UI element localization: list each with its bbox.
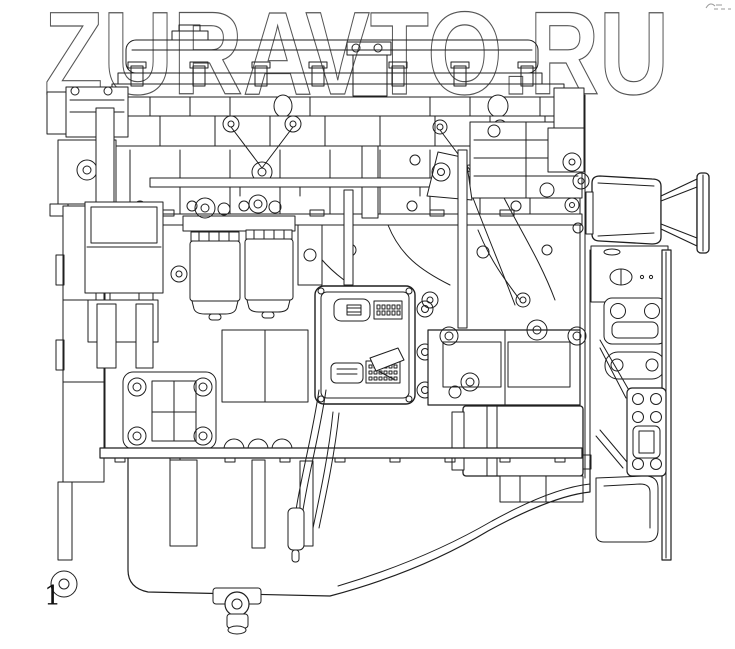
ecu-connector-a (334, 299, 370, 321)
parts-catalog-figure: ZURAVTO.RU (0, 0, 735, 649)
corner-mark (706, 4, 731, 9)
ecu-pin-block-a (374, 301, 402, 319)
engine-diagram: ZURAVTO.RU (0, 0, 735, 649)
drain-plug (213, 588, 261, 634)
side-boxes (85, 202, 163, 368)
item-number: 1 (44, 583, 61, 610)
ecu-connector-b (331, 363, 363, 383)
inspection-plate (123, 372, 292, 449)
